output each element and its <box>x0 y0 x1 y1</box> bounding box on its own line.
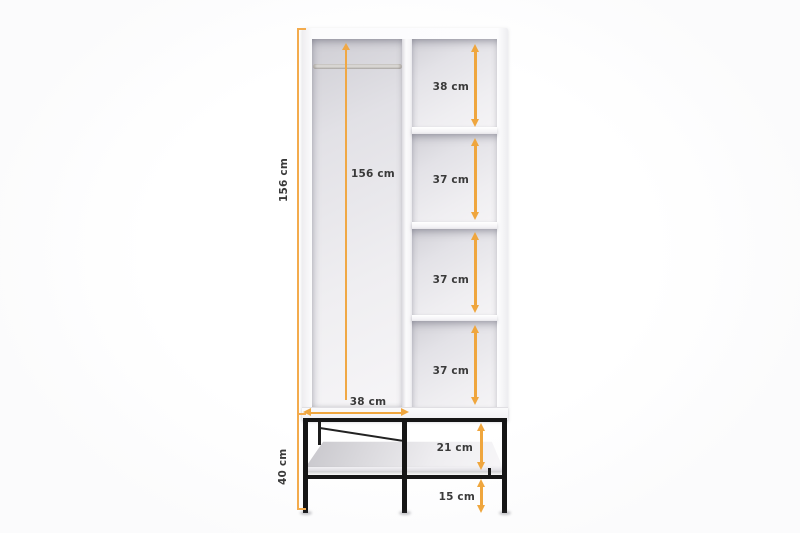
dim-label-base-height: 40 cm <box>277 449 289 485</box>
dim-label-compartment-1: 38 cm <box>424 81 469 93</box>
base-leg-left <box>303 418 308 513</box>
arrow-down-icon <box>477 462 485 470</box>
shelf-compartment-3 <box>412 229 497 315</box>
dim-arrow-base-shelf <box>477 423 486 470</box>
dim-label-total-height: 156 cm <box>278 158 290 202</box>
dim-label-interior-height: 156 cm <box>351 168 395 180</box>
hanging-rod <box>313 64 402 69</box>
shelf-2 <box>412 222 497 229</box>
dim-arrow-left-width <box>303 408 409 417</box>
dim-arrow-base-floor <box>477 479 486 513</box>
interior-height-line <box>345 49 347 400</box>
arrow-down-icon <box>471 397 479 405</box>
dim-arrow-compartment-1 <box>471 44 480 127</box>
vertical-divider-panel <box>402 39 412 407</box>
arrow-down-icon <box>471 305 479 313</box>
product-dimension-diagram: 156 cm 40 cm 156 cm 38 cm 37 cm 37 cm 37… <box>0 0 800 533</box>
foot-shadow <box>499 511 511 515</box>
foot-shadow <box>399 511 411 515</box>
dimension-tick-top <box>298 28 306 30</box>
foot-shadow <box>300 511 312 515</box>
hanging-compartment <box>312 39 402 407</box>
dim-arrow-compartment-4 <box>471 325 480 405</box>
arrow-down-icon <box>471 212 479 220</box>
dimension-tick-bottom <box>298 508 306 510</box>
dim-label-base-shelf: 21 cm <box>425 442 473 454</box>
arrow-right-icon <box>401 408 409 416</box>
base-back-leg-left <box>318 421 321 445</box>
dim-label-compartment-2: 37 cm <box>424 174 469 186</box>
base-back-rail <box>320 427 404 442</box>
dim-label-left-width: 38 cm <box>338 396 398 408</box>
base-leg-right <box>502 418 507 513</box>
overall-dimension-line <box>297 28 299 510</box>
shelf-compartment-4 <box>412 321 497 407</box>
dim-arrow-compartment-3 <box>471 232 480 313</box>
dim-label-compartment-4: 37 cm <box>424 365 469 377</box>
dim-arrow-compartment-2 <box>471 138 480 220</box>
dim-label-compartment-3: 37 cm <box>424 274 469 286</box>
dim-label-base-floor: 15 cm <box>427 491 475 503</box>
shelf-1 <box>412 127 497 134</box>
base-leg-center <box>402 418 407 513</box>
arrow-down-icon <box>471 119 479 127</box>
arrow-down-icon <box>477 505 485 513</box>
